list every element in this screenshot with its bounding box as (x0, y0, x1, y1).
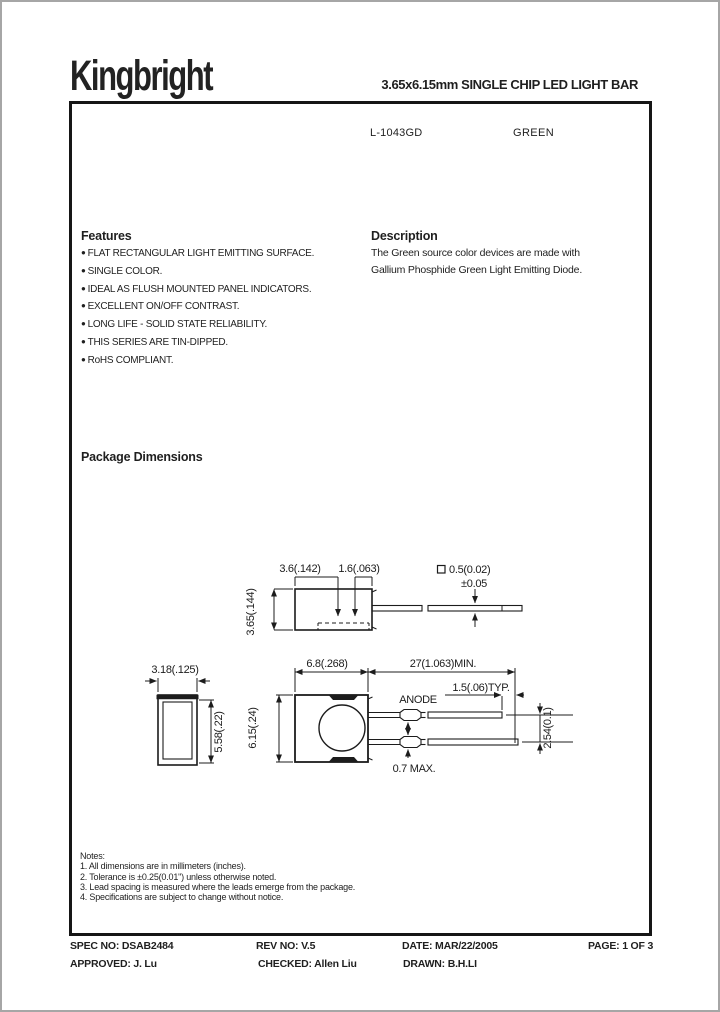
part-color: GREEN (513, 127, 554, 139)
feature-item: IDEAL AS FLUSH MOUNTED PANEL INDICATORS. (81, 281, 371, 299)
footer-checked-label: CHECKED: (258, 958, 312, 970)
feature-item: LONG LIFE - SOLID STATE RELIABILITY. (81, 316, 371, 334)
footer-drawn-label: DRAWN: (403, 958, 445, 970)
package-dimensions-heading: Package Dimensions (81, 450, 202, 464)
footer-rev-no: REV NO: V.5 (256, 940, 315, 952)
description-line: The Green source color devices are made … (371, 245, 641, 262)
footer-drawn-value: B.H.LI (448, 958, 477, 970)
footer-approved-label: APPROVED: (70, 958, 131, 970)
footer-checked: CHECKED: Allen Liu (258, 958, 357, 970)
features-list: FLAT RECTANGULAR LIGHT EMITTING SURFACE.… (81, 245, 371, 370)
footer-spec-no-label: SPEC NO: (70, 940, 119, 952)
notes-heading: Notes: (80, 851, 355, 861)
footer-date-label: DATE: (402, 940, 432, 952)
part-number: L-1043GD (370, 127, 422, 139)
footer-date-value: MAR/22/2005 (435, 940, 498, 952)
note-item: 1. All dimensions are in millimeters (in… (80, 861, 355, 871)
footer-page: PAGE: 1 OF 3 (588, 940, 653, 952)
footer-rev-no-label: REV NO: (256, 940, 298, 952)
note-item: 2. Tolerance is ±0.25(0.01") unless othe… (80, 872, 355, 882)
description-text: The Green source color devices are made … (371, 245, 641, 279)
footer-page-label: PAGE: (588, 940, 619, 952)
feature-item: THIS SERIES ARE TIN-DIPPED. (81, 334, 371, 352)
page-title: 3.65x6.15mm SINGLE CHIP LED LIGHT BAR (260, 77, 638, 92)
footer-rev-no-value: V.5 (301, 940, 315, 952)
notes-block: Notes: 1. All dimensions are in millimet… (80, 851, 355, 902)
footer-date: DATE: MAR/22/2005 (402, 940, 498, 952)
note-item: 3. Lead spacing is measured where the le… (80, 882, 355, 892)
datasheet-page: { "header": { "logo": "Kingbright", "tit… (0, 0, 720, 1012)
note-item: 4. Specifications are subject to change … (80, 892, 355, 902)
footer-approved-value: J. Lu (133, 958, 157, 970)
footer-page-value: 1 OF 3 (622, 940, 653, 952)
footer-drawn: DRAWN: B.H.LI (403, 958, 477, 970)
content-box-border (69, 101, 652, 936)
footer-checked-value: Allen Liu (314, 958, 357, 970)
footer-approved: APPROVED: J. Lu (70, 958, 157, 970)
footer-spec-no-value: DSAB2484 (122, 940, 174, 952)
description-heading: Description (371, 229, 438, 243)
feature-item: SINGLE COLOR. (81, 263, 371, 281)
feature-item: RoHS COMPLIANT. (81, 352, 371, 370)
kingbright-logo: Kingbright (70, 52, 212, 101)
description-line: Gallium Phosphide Green Light Emitting D… (371, 262, 641, 279)
feature-item: FLAT RECTANGULAR LIGHT EMITTING SURFACE. (81, 245, 371, 263)
feature-item: EXCELLENT ON/OFF CONTRAST. (81, 298, 371, 316)
features-heading: Features (81, 229, 132, 243)
footer-spec-no: SPEC NO: DSAB2484 (70, 940, 173, 952)
